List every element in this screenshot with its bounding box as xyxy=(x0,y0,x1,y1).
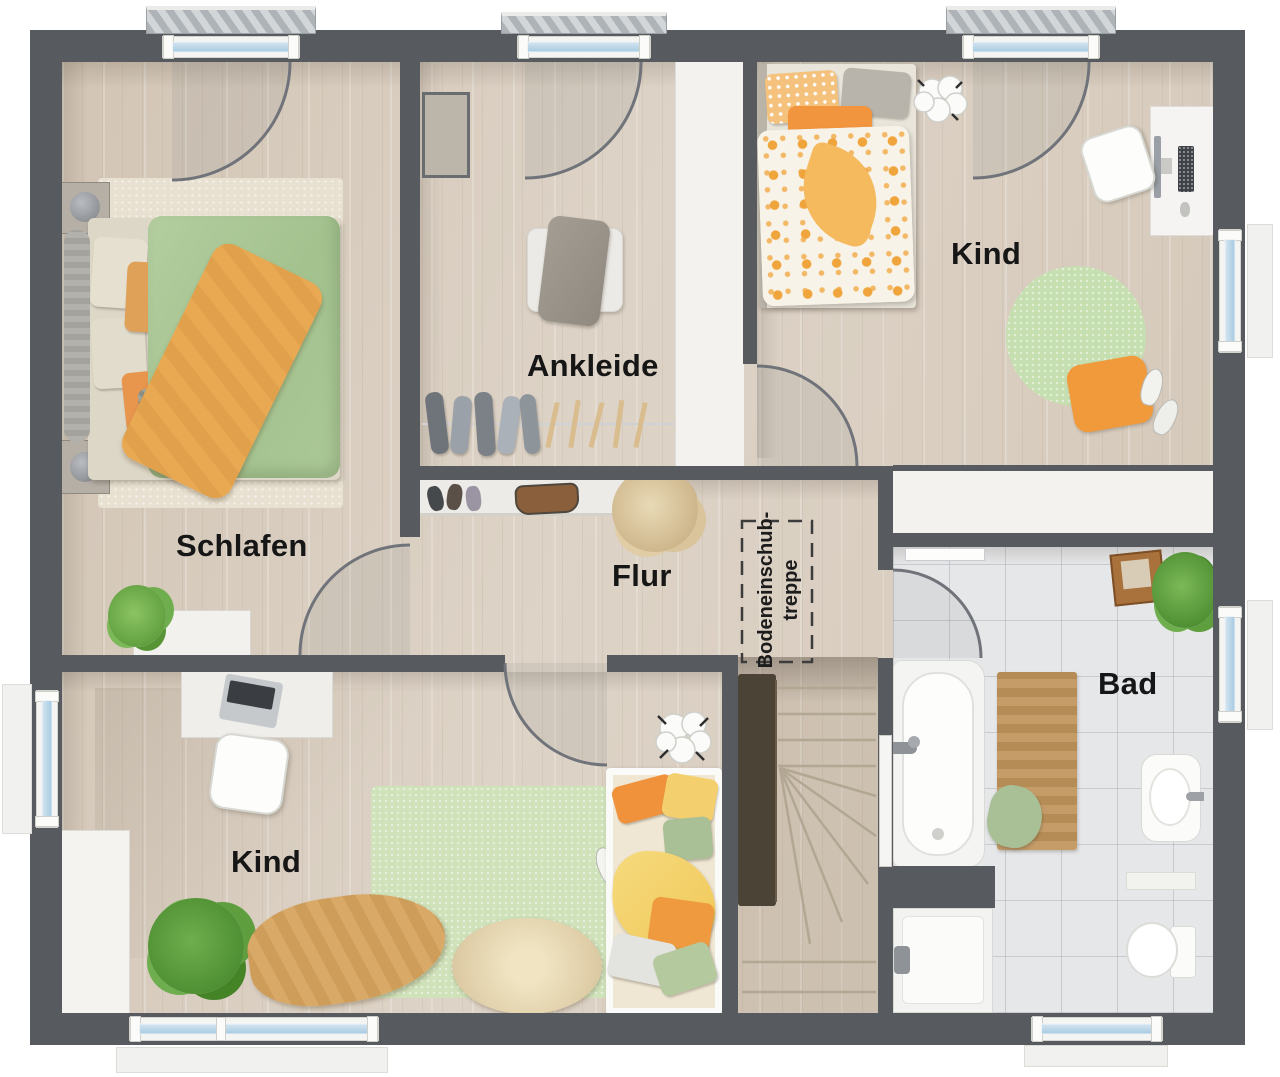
shadow-top xyxy=(62,62,1213,88)
imac-stand xyxy=(1161,158,1172,174)
ankleide-ottoman-throw xyxy=(537,215,611,328)
exterior-wall-right xyxy=(1213,30,1245,1045)
window-bottom-kind-mullion xyxy=(216,1017,226,1041)
bathtub-drain xyxy=(932,828,944,840)
ankleide-wardrobe xyxy=(422,92,470,178)
window-right-kind xyxy=(1219,229,1241,353)
awning-schlafen xyxy=(146,6,316,34)
wall-ankleide-flur xyxy=(400,466,893,480)
bed-headboard-bolster xyxy=(64,230,90,442)
kind-bottom-palm-plant xyxy=(148,898,244,994)
exterior-wall-left xyxy=(30,30,62,1045)
window-right-bad xyxy=(1219,606,1241,723)
flur-pampas-plant xyxy=(612,468,698,552)
window-ankleide-glass xyxy=(527,42,641,53)
window-right-bad-glass xyxy=(1225,616,1236,713)
room-label-bodeneinschubtreppe: Bodeneinschub- treppe xyxy=(754,512,804,669)
kind-bottom-pillow-yellow-top xyxy=(661,772,720,824)
wall-closet-kind xyxy=(743,62,757,364)
room-label-bad: Bad xyxy=(1098,666,1157,702)
window-kind-top xyxy=(962,36,1100,58)
wall-flur-bad-upper xyxy=(878,478,893,570)
window-left-glass xyxy=(42,700,53,818)
wall-kind-bottom-right xyxy=(607,655,722,672)
shower-tray-inner xyxy=(902,916,984,1004)
awning-kind-top xyxy=(946,6,1116,34)
bad-radiator xyxy=(905,548,985,561)
bad-closet xyxy=(893,465,1213,547)
mouse xyxy=(1180,202,1190,217)
window-bottom-bad xyxy=(1031,1017,1163,1041)
room-label-flur: Flur xyxy=(612,558,672,594)
room-label-kind-bottom: Kind xyxy=(231,844,301,880)
bad-plant xyxy=(1152,552,1218,628)
toilet-shelf xyxy=(1126,872,1196,890)
window-schlafen xyxy=(162,36,300,58)
imac-screen xyxy=(1154,136,1161,198)
sill-bottom-kind xyxy=(116,1047,388,1073)
sink-bowl xyxy=(1149,768,1191,826)
sink-faucet xyxy=(1186,792,1204,801)
window-bottom-kind-glass xyxy=(139,1024,369,1035)
sill-left xyxy=(2,684,32,834)
kind-bottom-wardrobe xyxy=(60,830,130,1015)
shower-partition-wall xyxy=(893,866,995,908)
bathtub-faucet-knob xyxy=(908,736,920,748)
sill-bottom-bad xyxy=(1024,1045,1168,1067)
room-label-kind-top: Kind xyxy=(951,236,1021,272)
floor-plan: Schlafen Ankleide Kind Flur Kind Bad Bod… xyxy=(0,0,1280,1077)
window-bottom-kind xyxy=(129,1017,379,1041)
window-left xyxy=(36,690,58,828)
bedroom-plant xyxy=(108,585,166,647)
wall-kind-stairs xyxy=(722,655,738,1013)
window-kind-top-glass xyxy=(972,42,1090,53)
room-label-schlafen: Schlafen xyxy=(176,528,308,564)
toilet-bowl xyxy=(1126,922,1178,978)
keyboard xyxy=(1178,146,1194,192)
kind-bottom-desk-chair xyxy=(207,731,291,817)
bad-stool-towel xyxy=(1121,559,1152,590)
window-schlafen-glass xyxy=(172,42,290,53)
sill-right-bad xyxy=(1247,600,1273,730)
closet-column xyxy=(675,62,744,466)
stair-closet-door xyxy=(879,735,892,867)
awning-ankleide xyxy=(501,12,667,34)
wall-kind-bottom-left xyxy=(62,655,505,672)
flur-handbag xyxy=(514,482,579,515)
sill-right-kind xyxy=(1247,224,1273,358)
window-ankleide xyxy=(517,36,651,58)
kind-bottom-pouf xyxy=(452,918,602,1014)
shower-fixture xyxy=(894,946,910,974)
stairwell-floor xyxy=(736,657,878,1013)
bodeneinschubtreppe-line2: treppe xyxy=(779,512,804,669)
window-right-kind-glass xyxy=(1225,239,1236,343)
bodeneinschubtreppe-line1: Bodeneinschub- xyxy=(754,512,779,669)
room-label-ankleide: Ankleide xyxy=(527,348,659,384)
window-bottom-bad-glass xyxy=(1041,1024,1153,1035)
